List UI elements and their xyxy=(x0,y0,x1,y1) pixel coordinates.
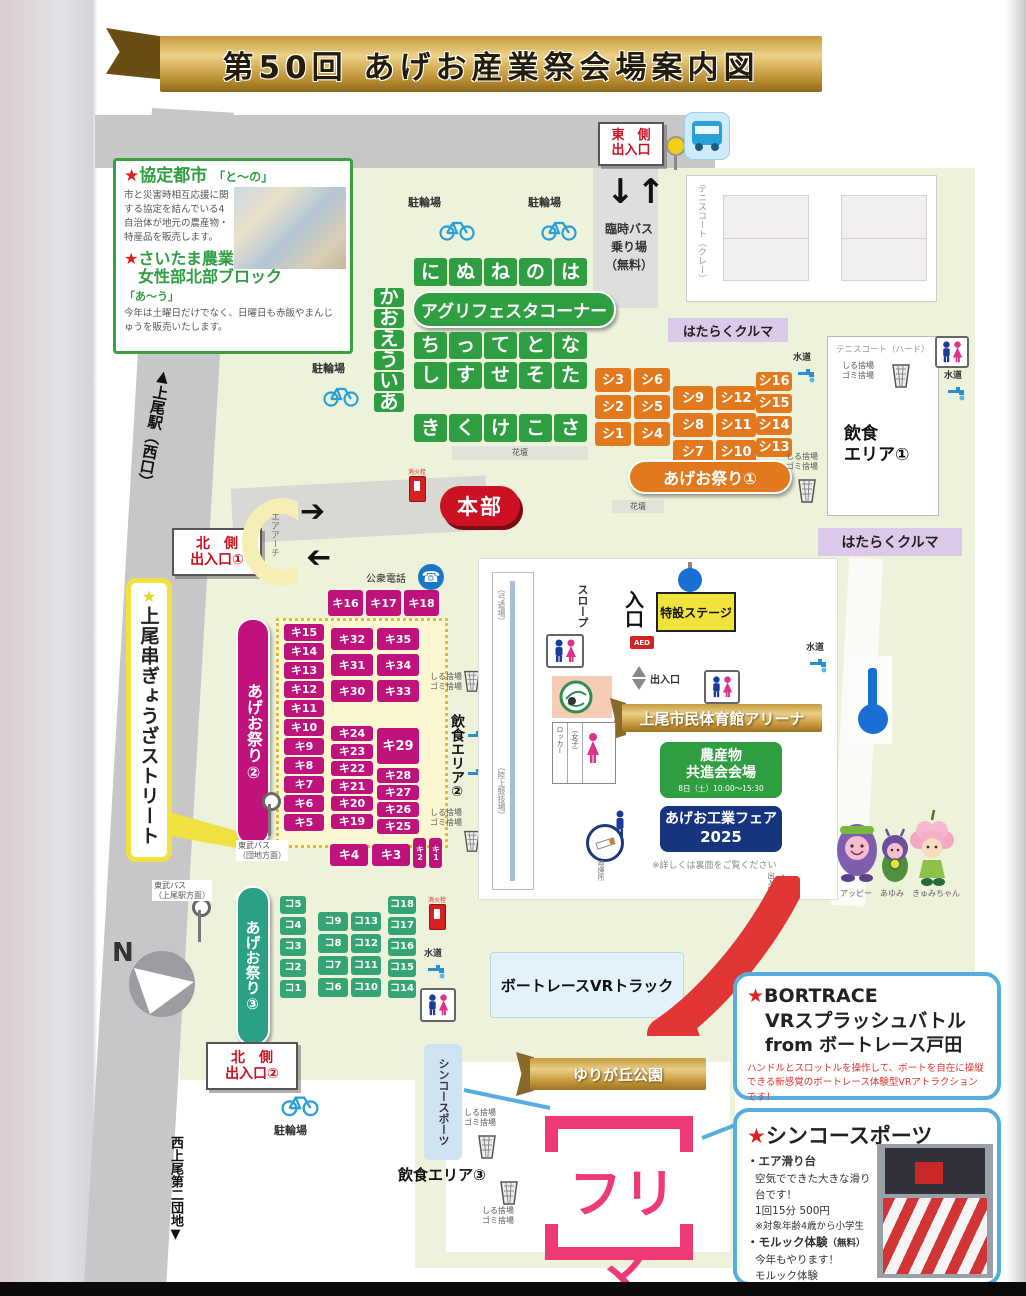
stall-cell: コ13 xyxy=(351,912,381,931)
stall-cell: な xyxy=(554,332,587,359)
stall-cell: コ2 xyxy=(280,959,306,977)
bus-line: 東武バス xyxy=(238,841,270,850)
bus-stop-icon xyxy=(192,898,208,942)
flowerbed: 花壇 xyxy=(452,446,588,460)
bicycle-parking: 駐輪場 xyxy=(274,1122,307,1138)
stall-cell: キ31 xyxy=(331,654,373,676)
ko-mid-grid: コ9コ13コ8コ12コ7コ11コ6コ10 xyxy=(318,912,381,997)
stall-cell: キ26 xyxy=(377,802,419,817)
stall-cell: キ15 xyxy=(284,624,324,641)
eating-area2-label: 飲食エリア② xyxy=(447,714,467,800)
ki-mid-upper: キ32キ31キ30 xyxy=(331,628,373,702)
stall-cell: キ5 xyxy=(284,814,324,831)
stall-cell: コ5 xyxy=(280,896,306,914)
shinko-strip-label: シンコースポーツ xyxy=(435,1058,451,1146)
ki-mid-lower: キ24キ23キ22キ21キ20キ19 xyxy=(331,726,373,829)
dump-station: しる捨場ゴミ捨場 xyxy=(786,452,818,471)
stall-cell: キ34 xyxy=(377,654,419,676)
water-text: 水道 xyxy=(793,353,811,363)
slide-price: 1回15分 500円 xyxy=(755,1203,879,1219)
bullet-molkky: ・モルック体験 xyxy=(747,1235,828,1249)
stage-box: 特設ステージ xyxy=(656,592,736,632)
ja-body: 今年は土曜日だけでなく、日曜日も赤飯やまんじゅうを販売いたします。 xyxy=(124,307,342,336)
bicycle-icon xyxy=(322,382,360,408)
slide-photo xyxy=(877,1144,993,1278)
stall-cell: シ9 xyxy=(673,386,713,410)
stall-cell: シ4 xyxy=(634,422,670,446)
stall-cell: こ xyxy=(519,414,552,442)
toilet-icon xyxy=(546,634,584,668)
east-gate-sign: 東 側 出入口 xyxy=(598,122,664,166)
flea-bracket-top xyxy=(545,1116,693,1152)
gate-label: 北 側 xyxy=(196,536,238,552)
fire-hydrant-icon: 消火栓 xyxy=(408,470,426,502)
stall-cell: そ xyxy=(519,362,552,389)
woman-icon xyxy=(583,731,603,771)
water-text: 水道 xyxy=(424,949,442,959)
stall-cell: コ17 xyxy=(388,917,416,935)
produce-time: 8日（土）10:00〜15:30 xyxy=(660,784,782,793)
stall-cell: シ1 xyxy=(595,422,631,446)
honbu-text: 本部 xyxy=(457,491,503,521)
faucet-icon xyxy=(808,654,830,674)
festival1-label: あげお祭り① xyxy=(628,460,792,494)
star-icon: ★ xyxy=(747,985,764,1007)
smoking-area-icon xyxy=(586,824,624,862)
baby-station xyxy=(552,676,612,718)
bicycle-icon xyxy=(280,1090,320,1118)
stall-cell: シ8 xyxy=(673,413,713,437)
stall-cell: キ32 xyxy=(331,628,373,650)
flea-bracket-bottom xyxy=(545,1224,693,1260)
aed-badge: AED xyxy=(630,636,654,649)
fire-hydrant-icon: 消火栓 xyxy=(428,898,446,930)
stall-cell: シ12 xyxy=(716,386,756,410)
shuttle-line: （無料） xyxy=(594,256,664,274)
tennis-clay-label: テニスコート（クレー） xyxy=(695,184,708,294)
agri-row-mid1: ちってとな xyxy=(414,332,587,359)
shinko-box: ★シンコースポーツ ・エア滑り台 空気でできた大きな滑り台です！ 1回15分 5… xyxy=(733,1108,1001,1286)
stall-cell: キ2 xyxy=(413,838,426,868)
arena-label: 上尾市民体育館アリーナ xyxy=(639,708,804,729)
stall-cell: っ xyxy=(449,332,482,359)
partner-heading: 協定都市 xyxy=(139,166,207,186)
photo-bottom-bar xyxy=(0,1282,1026,1296)
dump-station: しる捨場ゴミ捨場 xyxy=(464,1108,496,1127)
stall-cell: キ20 xyxy=(331,796,373,811)
stall-cell: キ9 xyxy=(284,738,324,755)
trash-dump-label: ゴミ捨場 xyxy=(786,462,818,471)
parking-label: 駐輪場 xyxy=(528,196,561,209)
hataraku-text: はたらくクルマ xyxy=(683,321,773,340)
ko-right-col: コ18コ17コ16コ15コ14 xyxy=(388,896,416,998)
stall-cell: シ11 xyxy=(716,413,756,437)
stall-cell: キ19 xyxy=(331,814,373,829)
stall-cell: キ25 xyxy=(377,819,419,834)
entrance-label: 入口 xyxy=(620,590,647,628)
molkky-desc: 今年もやります！ xyxy=(755,1252,879,1268)
faucet-icon xyxy=(426,960,448,980)
stall-cell: キ16 xyxy=(328,590,363,616)
kyudo-label: （弓道場） xyxy=(496,585,507,625)
stall-label: キ2 xyxy=(416,845,424,862)
bus-line: 東武バス xyxy=(154,881,186,890)
bus-dest: （団地方面） xyxy=(238,851,286,860)
stall-cell: ぬ xyxy=(449,258,482,286)
shi-block1: シ3シ6シ2シ5シ1シ4 xyxy=(595,368,670,446)
soup-dump-label: しる捨場 xyxy=(786,452,818,461)
water-label: 水道 xyxy=(424,946,442,959)
dump-station: しる捨場ゴミ捨場 xyxy=(482,1206,514,1225)
molkky-free: （無料） xyxy=(828,1238,866,1249)
ki-top-row: キ16キ17キ18 xyxy=(328,590,439,616)
soup-dump-label: しる捨場 xyxy=(464,1108,496,1117)
stall-cell: コ3 xyxy=(280,938,306,956)
stage-pin xyxy=(678,562,702,592)
yurigaoka-label: ゆりが丘公園 xyxy=(573,1064,663,1085)
stall-cell: キ14 xyxy=(284,643,324,660)
produce-show-box: 農産物 共進会会場 8日（土）10:00〜15:30 xyxy=(660,742,782,798)
bus-stop-icon xyxy=(262,792,278,836)
mascot-caption: アッピー あゆみ きゅみちゃん xyxy=(832,888,968,899)
fair-line: 2025 xyxy=(660,828,782,847)
stall-cell: せ xyxy=(484,362,517,389)
bullet-air-slide: ・エア滑り台 xyxy=(747,1153,879,1171)
trash-dump-label: ゴミ捨場 xyxy=(464,1118,496,1127)
stall-cell: シ2 xyxy=(595,395,631,419)
stall-cell: コ8 xyxy=(318,934,348,953)
shuttle-arrows: ↓↑ xyxy=(606,172,667,212)
bortrace-body: ハンドルとスロットルを操作して、ボートを自在に操縦できる新感覚のボートレース体験… xyxy=(747,1062,987,1105)
stall-cell: き xyxy=(414,414,447,442)
aed-label: AED xyxy=(634,639,650,647)
venue-map: 第50回 あげお産業祭会場案内図 ★協定都市 「と〜の」 市と災害時相互応援に関… xyxy=(0,0,1026,1296)
stall-cell: キ28 xyxy=(377,768,419,783)
bortrace-box: ★BORTRACE VRスプラッシュバトル from ボートレース戸田 ハンドル… xyxy=(733,972,1001,1100)
produce-line: 農産物 xyxy=(660,748,782,765)
bicycle-parking: 駐輪場 xyxy=(408,194,441,210)
stall-cell: た xyxy=(554,362,587,389)
stall-cell: キ18 xyxy=(404,590,439,616)
stall-label: キ29 xyxy=(382,740,413,753)
stall-cell: シ14 xyxy=(756,416,792,435)
toilet-icon xyxy=(420,988,456,1022)
stall-cell: キ30 xyxy=(331,680,373,702)
stall-cell: コ6 xyxy=(318,978,348,997)
trash-icon xyxy=(796,476,818,504)
parking-label: 駐輪場 xyxy=(408,196,441,209)
produce-line: 共進会会場 xyxy=(660,765,782,782)
agri-col-left: かおえういあ xyxy=(374,288,404,412)
stall-cell: あ xyxy=(374,393,404,412)
hataraku-label: はたらくクルマ xyxy=(668,318,788,342)
ki-left-col: キ15キ14キ13キ12キ11キ10キ9キ8キ7キ6キ5 xyxy=(284,624,324,831)
stall-cell: キ35 xyxy=(377,628,419,650)
water-label: 水道 xyxy=(793,350,811,363)
arena-ribbon: 上尾市民体育館アリーナ xyxy=(622,704,822,732)
ribbon-fold xyxy=(106,28,168,80)
hataraku-label: はたらくクルマ xyxy=(818,528,962,556)
stall-cell: キ27 xyxy=(377,785,419,800)
faucet-icon xyxy=(946,382,968,402)
bicycle-parking: 駐輪場 xyxy=(312,360,345,376)
page-title: 第50回 あげお産業祭会場案内図 xyxy=(223,42,760,87)
bicycle-icon xyxy=(540,216,578,242)
stall-label: キ3 xyxy=(381,849,401,861)
trash-dump-label: ゴミ捨場 xyxy=(430,682,462,691)
toilet-icon xyxy=(704,670,740,704)
stall-cell: し xyxy=(414,362,447,389)
agrifesta-text: アグリフェスタコーナー xyxy=(421,297,607,322)
stall-cell: コ7 xyxy=(318,956,348,975)
gate-label2: 出入口 xyxy=(611,144,650,159)
agri-row-bottom: きくけこさ xyxy=(414,414,587,442)
stall-cell: か xyxy=(374,288,404,307)
soup-dump-label: しる捨場 xyxy=(430,672,462,681)
stall-cell: ね xyxy=(484,258,517,286)
agri-row-top: にぬねのは xyxy=(414,258,587,286)
stall-cell: キ12 xyxy=(284,681,324,698)
blue-pin-marker xyxy=(858,668,888,738)
stall-cell: キ3 xyxy=(372,844,410,866)
stall-cell: コ9 xyxy=(318,912,348,931)
partner-cities-box: ★協定都市 「と〜の」 市と災害時相互応援に関する協定を結んでいる4自治体が地元… xyxy=(113,158,353,354)
mascot-characters xyxy=(835,790,965,888)
ki-right-lower: キ28キ27キ26キ25 xyxy=(377,768,419,834)
bortrace-title2: VRスプラッシュバトル xyxy=(765,1010,966,1032)
stall-label: キ4 xyxy=(339,849,359,861)
slide-desc: 空気でできた大きな滑り台です！ xyxy=(755,1171,879,1204)
eating1-line: エリア① xyxy=(844,445,938,466)
north-gate2-sign: 北 側 出入口② xyxy=(206,1042,298,1090)
festival2-text: あげお祭り② xyxy=(241,683,265,782)
hataraku-text: はたらくクルマ xyxy=(841,532,938,552)
gate-label2: 出入口② xyxy=(225,1066,279,1082)
flowerbed-label: 花壇 xyxy=(630,502,646,512)
stall-cell: キ33 xyxy=(377,680,419,702)
stall-cell: え xyxy=(374,330,404,349)
stall-cell: キ1 xyxy=(429,838,442,868)
stall-label: キ1 xyxy=(432,845,440,862)
honbu-sign: 本部 xyxy=(440,486,520,526)
locker-room: ロッカー （女子） xyxy=(552,722,616,784)
soup-dump-label: しる捨場 xyxy=(842,361,874,370)
stall-cell: キ17 xyxy=(366,590,401,616)
stall-cell: シ5 xyxy=(634,395,670,419)
stall-cell: コ11 xyxy=(351,956,381,975)
stall-cell: キ21 xyxy=(331,779,373,794)
danchi-direction: 西上尾第二団地▼ xyxy=(166,1136,185,1276)
gym-exit: 出入口 xyxy=(632,666,680,690)
ja-heading2: 女性部北部ブロック xyxy=(138,267,282,286)
stall-cell: コ10 xyxy=(351,978,381,997)
eating-area3-label: 飲食エリア③ xyxy=(398,1164,486,1185)
stall-cell: コ15 xyxy=(388,959,416,977)
stall-cell: コ12 xyxy=(351,934,381,953)
tennis-court xyxy=(723,195,809,281)
bus-stop-label: 東武バス（団地方面） xyxy=(236,840,288,861)
bortrace-title: BORTRACE xyxy=(764,985,878,1007)
stall-cell: キ6 xyxy=(284,795,324,812)
faucet-icon xyxy=(796,364,818,384)
shinko-strip: シンコースポーツ xyxy=(424,1044,462,1160)
stall-cell: コ16 xyxy=(388,938,416,956)
star-icon: ★ xyxy=(747,1124,766,1148)
ki-right-upper: キ35キ34キ33 xyxy=(377,628,419,702)
stall-cell: う xyxy=(374,351,404,370)
locker-label: ロッカー xyxy=(553,723,568,783)
phone-icon: ☎ xyxy=(418,564,444,590)
baby-station-icon xyxy=(558,679,594,715)
partner-quote: 「と〜の」 xyxy=(213,170,273,184)
bus-icon xyxy=(684,112,730,160)
stall-cell: に xyxy=(414,258,447,286)
stall-cell: す xyxy=(449,362,482,389)
toilet-icon xyxy=(935,336,969,368)
festival3-text: あげお祭り③ xyxy=(243,920,264,1013)
trash-dump-label: ゴミ捨場 xyxy=(482,1216,514,1225)
stall-cell: キ10 xyxy=(284,719,324,736)
agrifesta-label: アグリフェスタコーナー xyxy=(412,291,616,328)
industry-fair-box: あげお工業フェア 2025 xyxy=(660,806,782,852)
trash-icon xyxy=(498,1178,520,1206)
bicycle-parking: 駐輪場 xyxy=(528,194,561,210)
ko-left-col: コ5コ4コ3コ2コ1 xyxy=(280,896,306,998)
see-back-note: ※詳しくは裏面をご覧ください xyxy=(652,858,777,871)
phone-text: 公衆電話 xyxy=(366,574,406,585)
festival3-label: あげお祭り③ xyxy=(236,886,270,1046)
stall-cell: キ11 xyxy=(284,700,324,717)
trash-dump-label: ゴミ捨場 xyxy=(842,371,874,380)
star-icon: ★ xyxy=(124,166,139,186)
eating1-line: 飲食 xyxy=(844,424,938,445)
slide-age: ※対象年齢4歳から小学生 xyxy=(755,1220,879,1235)
soup-dump-label: しる捨場 xyxy=(482,1206,514,1215)
stall-cell: ち xyxy=(414,332,447,359)
dump-station: しる捨場ゴミ捨場 xyxy=(430,672,462,691)
bortrace-title3: from ボートレース戸田 xyxy=(765,1035,962,1056)
stall-cell: コ18 xyxy=(388,896,416,914)
ja-quote: 「あ〜う」 xyxy=(124,290,179,303)
flow-arrow-left: ➔ xyxy=(306,540,331,575)
air-arch-label: エアアーチ xyxy=(268,512,281,557)
trash-icon xyxy=(890,361,912,389)
gate-label2: 出入口① xyxy=(190,552,244,568)
stall-cell: コ14 xyxy=(388,980,416,998)
trash-icon xyxy=(476,1132,498,1160)
water-label: 水道 xyxy=(944,368,962,381)
gate-label: 北 側 xyxy=(231,1050,273,1066)
festival1-text: あげお祭り① xyxy=(663,465,757,489)
stall-cell: キ7 xyxy=(284,776,324,793)
stall-cell: キ24 xyxy=(331,726,373,741)
stall-cell: シ6 xyxy=(634,368,670,392)
stall-cell: シ16 xyxy=(756,372,792,391)
stall-cell: お xyxy=(374,309,404,328)
slope-label: スロープ xyxy=(574,584,590,628)
tennis-hard-label: テニスコート（ハード） xyxy=(836,343,938,355)
tennis-clay-box: テニスコート（クレー） xyxy=(686,175,937,302)
parking-label: 駐輪場 xyxy=(312,362,345,375)
products-photo xyxy=(234,187,346,269)
title-banner: 第50回 あげお産業祭会場案内図 xyxy=(160,36,822,92)
trash-dump-label: ゴミ捨場 xyxy=(430,818,462,827)
stall-cell: キ23 xyxy=(331,744,373,759)
star-icon: ★ xyxy=(124,249,138,268)
stall-cell: キ29 xyxy=(377,728,419,764)
stall-cell: コ1 xyxy=(280,980,306,998)
stall-cell: コ4 xyxy=(280,917,306,935)
stall-cell: と xyxy=(519,332,552,359)
dump-station: しる捨場ゴミ捨場 xyxy=(430,808,462,827)
stall-cell: い xyxy=(374,372,404,391)
tennis-court xyxy=(841,195,927,281)
parking-label: 駐輪場 xyxy=(274,1124,307,1137)
shi-col3: シ16シ15シ14シ13 xyxy=(756,372,792,457)
athletics-label: （陸上競技場） xyxy=(496,763,507,819)
shuttle-line: 臨時バス xyxy=(594,220,664,238)
soup-dump-label: しる捨場 xyxy=(430,808,462,817)
phone-label: 公衆電話 xyxy=(366,570,406,585)
bus-stop-label: 東武バス（上尾駅方面） xyxy=(152,880,212,901)
flow-arrow-right: ➔ xyxy=(300,494,325,529)
water-text: 水道 xyxy=(806,643,824,653)
stall-cell: は xyxy=(554,258,587,286)
bicycle-icon xyxy=(438,216,476,242)
fair-line: あげお工業フェア xyxy=(660,811,782,829)
gate-label: 東 側 xyxy=(611,129,650,144)
water-text: 水道 xyxy=(944,371,962,381)
stall-cell: キ8 xyxy=(284,757,324,774)
stall-cell: キ22 xyxy=(331,761,373,776)
shi-block2: シ9シ12シ8シ11シ7シ10 xyxy=(673,386,756,464)
stall-cell: シ3 xyxy=(595,368,631,392)
room-label: （女子） xyxy=(568,723,583,783)
traffic-signal-icon xyxy=(666,136,684,170)
exit-label: 出入口 xyxy=(650,671,680,686)
eating-area1-box: テニスコート（ハード） しる捨場ゴミ捨場 飲食 エリア① xyxy=(827,336,939,516)
stall-cell: キ4 xyxy=(330,844,368,866)
compass: N xyxy=(112,938,202,1022)
stall-cell: て xyxy=(484,332,517,359)
stall-cell: シ15 xyxy=(756,394,792,413)
water-label: 水道 xyxy=(806,640,824,653)
flowerbed: 花壇 xyxy=(612,500,664,513)
stage-label: 特設ステージ xyxy=(660,604,732,621)
gyoza-street-label: 上尾串ぎょうざストリート xyxy=(136,606,163,846)
flowerbed-label: 花壇 xyxy=(512,448,528,458)
yurigaoka-ribbon: ゆりが丘公園 xyxy=(530,1058,706,1090)
partner-body: 市と災害時相互応援に関する協定を結んでいる4自治体が地元の農産物・特産品を販売し… xyxy=(124,189,234,246)
stall-cell: く xyxy=(449,414,482,442)
stall-cell: の xyxy=(519,258,552,286)
shuttle-line: 乗り場 xyxy=(594,238,664,256)
gyoza-street-box: ★ 上尾串ぎょうざストリート xyxy=(126,578,172,862)
agri-row-mid2: しすせそた xyxy=(414,362,587,389)
stall-cell: さ xyxy=(554,414,587,442)
stall-cell: け xyxy=(484,414,517,442)
shuttle-label: 臨時バス 乗り場 （無料） xyxy=(594,220,664,274)
star-icon: ★ xyxy=(142,587,156,606)
bus-dest: （上尾駅方面） xyxy=(154,891,210,900)
stall-cell: キ13 xyxy=(284,662,324,679)
corridor-strip: （弓道場） （陸上競技場） xyxy=(492,572,534,890)
